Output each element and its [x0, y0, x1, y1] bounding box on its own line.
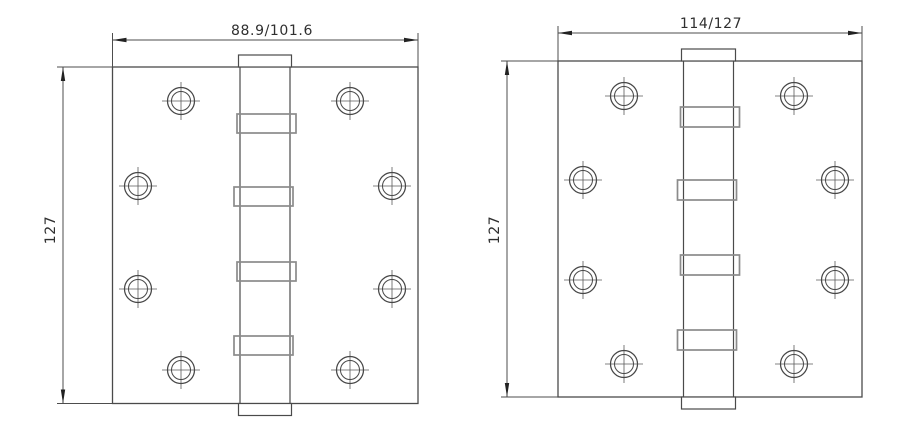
- dimension-arrow: [61, 390, 65, 404]
- hinge-barrel-cap-top: [239, 55, 292, 67]
- dimension-arrow: [505, 383, 509, 397]
- drawing-stage: 88.9/101.6127114/127127: [0, 0, 915, 426]
- dimension-arrow: [404, 38, 418, 42]
- dimension-arrow: [848, 31, 862, 35]
- height-dimension-label: 127: [43, 216, 59, 245]
- height-dimension: 127: [43, 67, 113, 404]
- hinge-barrel-column: [240, 67, 290, 404]
- dimension-arrow: [61, 67, 65, 81]
- hinge-barrel-cap-bottom: [239, 404, 292, 416]
- height-dimension-label: 127: [487, 216, 503, 245]
- hinge-view-right: 114/127127: [487, 16, 862, 409]
- hinge-barrel-column: [684, 61, 734, 397]
- hinge-barrel-cap-top: [682, 49, 736, 61]
- dimension-arrow: [113, 38, 127, 42]
- width-dimension-label: 114/127: [680, 16, 742, 32]
- width-dimension-label: 88.9/101.6: [231, 23, 313, 39]
- dimension-arrow: [558, 31, 572, 35]
- hinge-barrel-cap-bottom: [682, 397, 736, 409]
- dimension-arrow: [505, 61, 509, 75]
- height-dimension: 127: [487, 61, 558, 397]
- hinge-technical-drawing: 88.9/101.6127114/127127: [0, 0, 915, 426]
- hinge-view-left: 88.9/101.6127: [43, 23, 418, 416]
